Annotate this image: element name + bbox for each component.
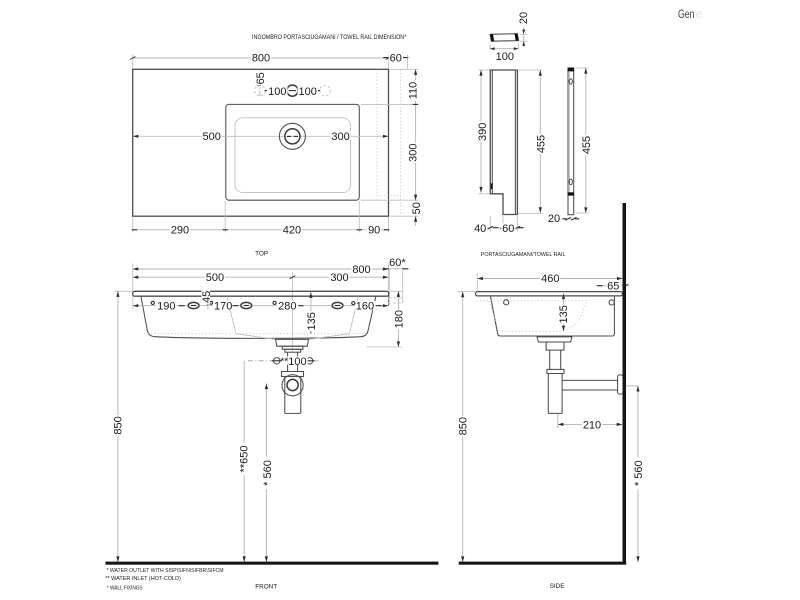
svg-text:850: 850: [457, 417, 469, 435]
svg-text:170: 170: [214, 301, 232, 313]
svg-text:e: e: [695, 7, 702, 21]
svg-text:PORTASCIUGAMANI/TOWEL RAIL: PORTASCIUGAMANI/TOWEL RAIL: [481, 252, 566, 258]
svg-text:290: 290: [171, 225, 189, 237]
svg-text:110: 110: [407, 82, 419, 100]
svg-text:420: 420: [283, 225, 301, 237]
svg-text:300: 300: [330, 272, 348, 284]
svg-text:280: 280: [278, 301, 296, 313]
svg-text:500: 500: [203, 131, 221, 143]
svg-text:135: 135: [306, 312, 318, 330]
svg-text:** WATER INLET (HOT-COLD): ** WATER INLET (HOT-COLD): [105, 576, 181, 582]
svg-text:455: 455: [581, 136, 593, 154]
svg-text:455: 455: [535, 135, 547, 153]
svg-text:180: 180: [393, 310, 405, 328]
svg-text:FRONT: FRONT: [255, 584, 277, 591]
svg-text:65: 65: [607, 281, 619, 293]
svg-text:135: 135: [558, 305, 570, 323]
svg-text:* WALL FIXINGS: * WALL FIXINGS: [107, 585, 143, 591]
svg-text:20: 20: [548, 213, 560, 225]
svg-text:850: 850: [112, 416, 124, 434]
svg-text:100: 100: [496, 51, 514, 63]
svg-text:160: 160: [356, 301, 374, 313]
svg-text:210: 210: [583, 420, 601, 432]
svg-text:100: 100: [288, 356, 306, 368]
svg-text:300: 300: [331, 131, 349, 143]
svg-text:100: 100: [299, 86, 317, 98]
svg-text:800: 800: [352, 264, 370, 276]
svg-text:* 560: * 560: [262, 460, 274, 486]
svg-text:460: 460: [541, 273, 559, 285]
svg-text:* WATER OUTLET WITH SISP\SIFN: * WATER OUTLET WITH SISP\SIFN\SIFBR\SIFC…: [107, 568, 224, 574]
svg-text:60: 60: [390, 53, 402, 65]
svg-text:500: 500: [206, 272, 224, 284]
svg-text:50: 50: [411, 202, 423, 214]
svg-text:60: 60: [502, 223, 514, 235]
svg-text:300: 300: [408, 144, 420, 162]
svg-text:Gen: Gen: [678, 7, 695, 21]
svg-text:45: 45: [201, 291, 213, 303]
svg-text:65: 65: [255, 72, 267, 84]
svg-text:SIDE: SIDE: [550, 583, 565, 590]
svg-text:100: 100: [268, 86, 286, 98]
svg-text:190: 190: [157, 301, 175, 313]
svg-text:20: 20: [518, 12, 530, 24]
svg-text:* 560: * 560: [633, 460, 645, 486]
svg-text:390: 390: [477, 123, 489, 141]
svg-text:60*: 60*: [389, 257, 406, 269]
svg-text:TOP: TOP: [255, 250, 268, 257]
svg-text:800: 800: [252, 53, 270, 65]
svg-text:**: **: [280, 357, 288, 368]
svg-text:**650: **650: [238, 446, 250, 473]
svg-text:INGOMBRO PORTASCIUGAMANI / TOW: INGOMBRO PORTASCIUGAMANI / TOWEL RAIL DI…: [252, 34, 407, 41]
svg-text:40: 40: [474, 223, 486, 235]
svg-text:90: 90: [368, 225, 380, 237]
